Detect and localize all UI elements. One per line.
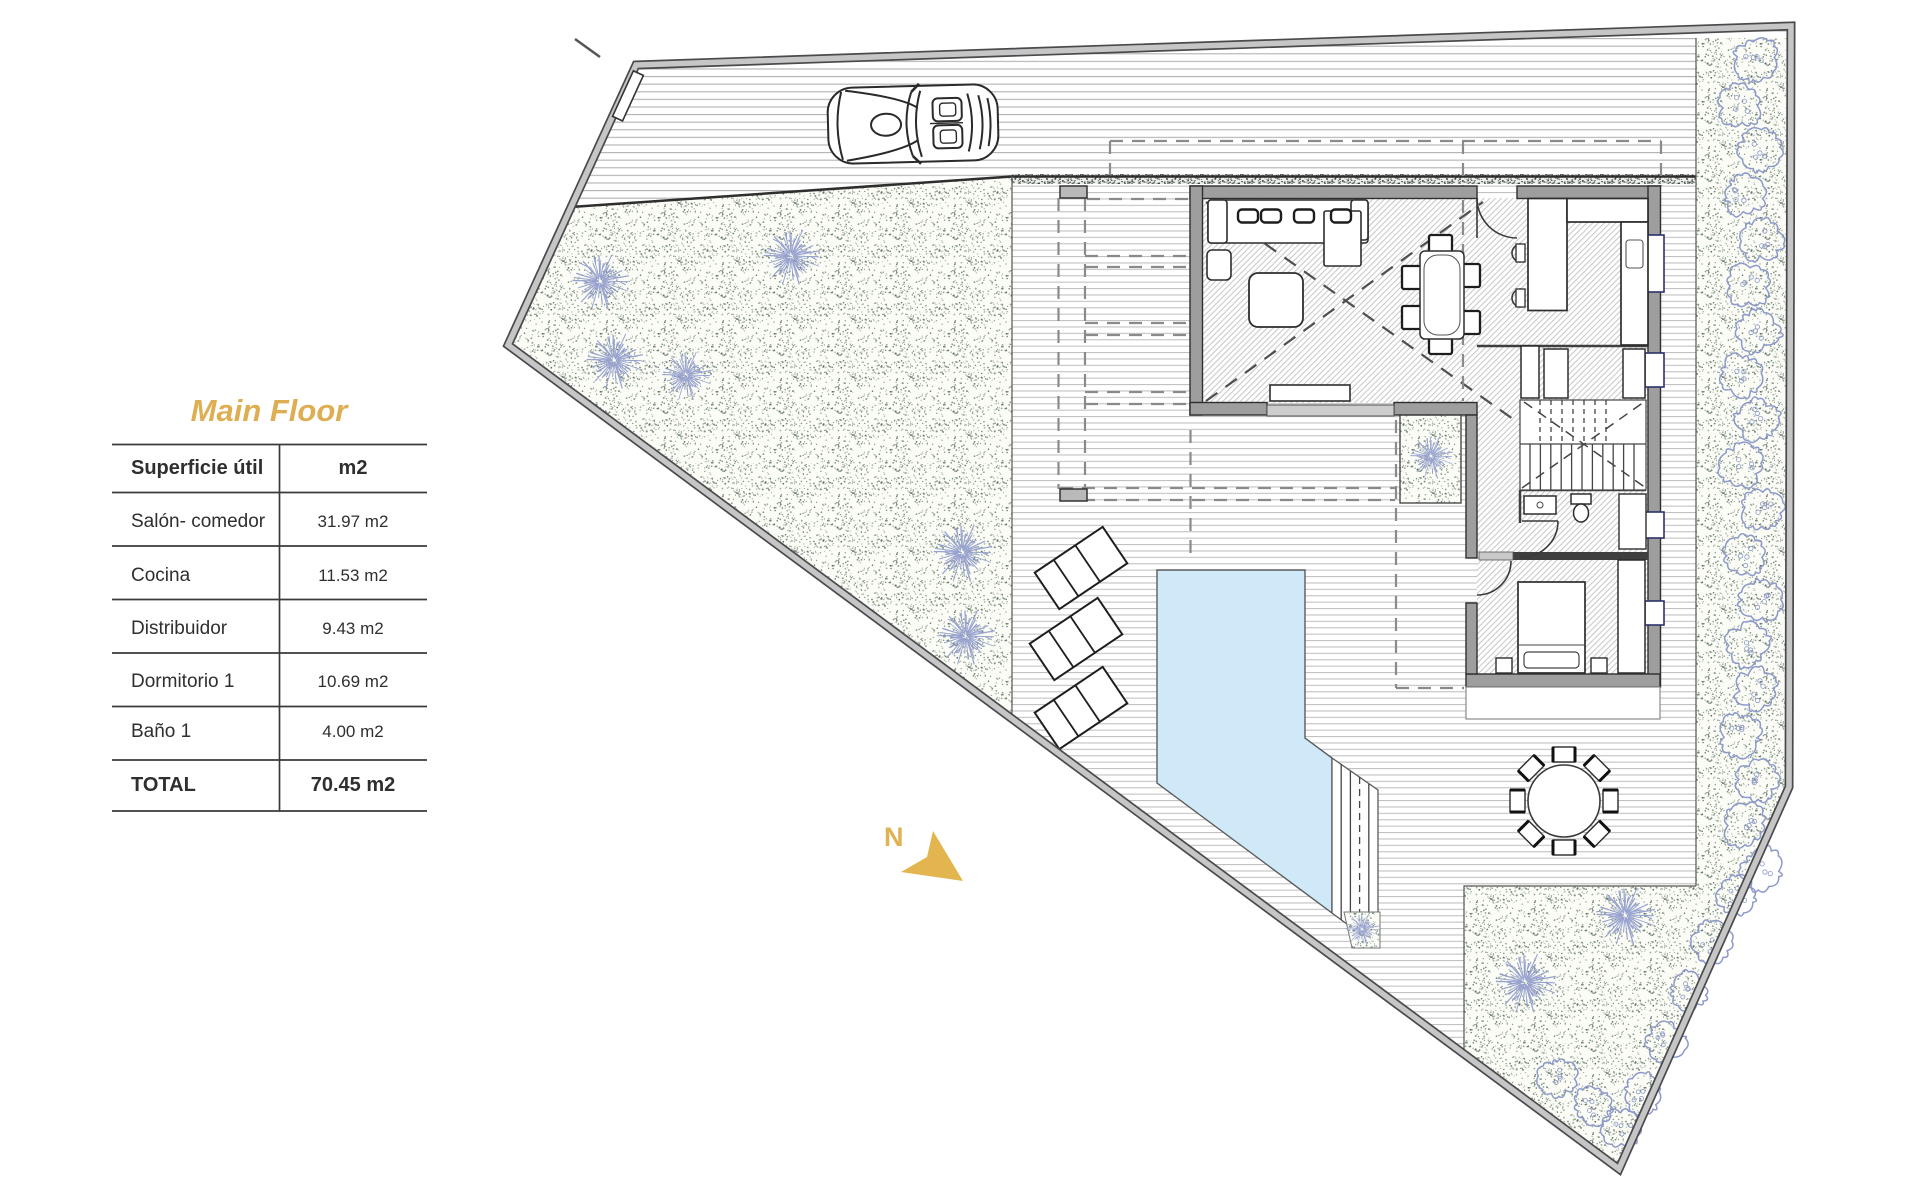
svg-text:31.97 m2: 31.97 m2 <box>318 512 389 531</box>
svg-text:Distribuidor: Distribuidor <box>131 618 228 639</box>
svg-text:4.00 m2: 4.00 m2 <box>322 722 383 741</box>
svg-text:10.69 m2: 10.69 m2 <box>318 672 389 691</box>
svg-text:11.53 m2: 11.53 m2 <box>318 566 388 585</box>
svg-text:Salón- comedor: Salón- comedor <box>131 511 266 532</box>
svg-text:Baño 1: Baño 1 <box>131 721 191 742</box>
svg-text:Cocina: Cocina <box>131 565 191 586</box>
svg-text:m2: m2 <box>339 457 368 479</box>
svg-text:9.43 m2: 9.43 m2 <box>322 619 383 638</box>
svg-text:70.45 m2: 70.45 m2 <box>311 774 396 796</box>
svg-text:TOTAL: TOTAL <box>131 774 196 796</box>
svg-text:Main Floor: Main Floor <box>191 393 350 428</box>
svg-text:Dormitorio 1: Dormitorio 1 <box>131 671 234 692</box>
svg-text:Superficie útil: Superficie útil <box>131 457 263 479</box>
svg-text:N: N <box>884 822 904 852</box>
